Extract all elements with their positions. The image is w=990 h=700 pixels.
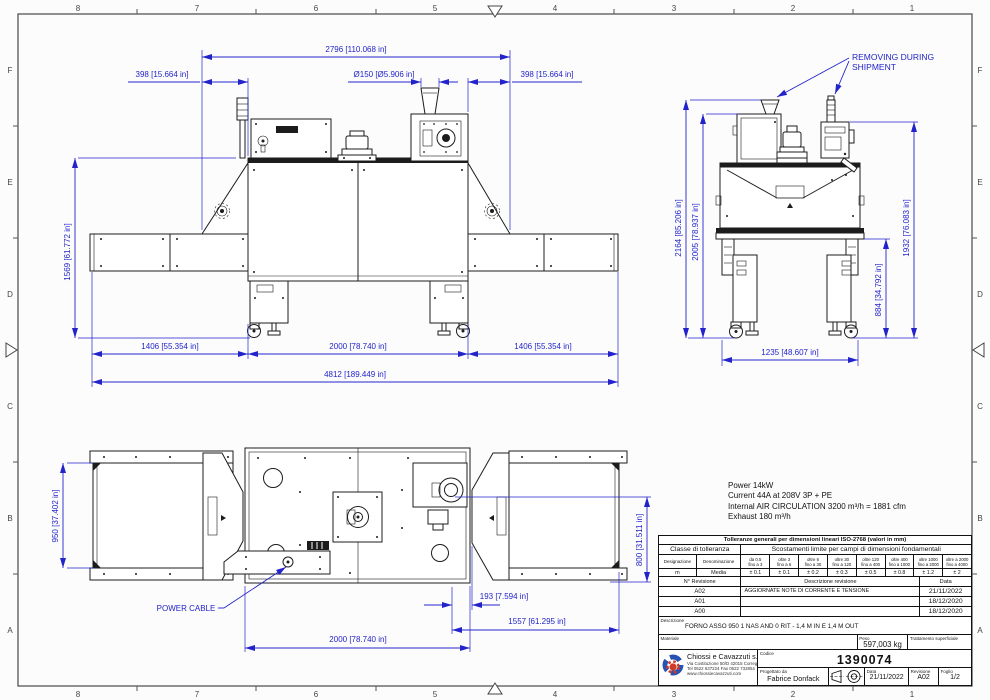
tolerance-class-header: Classe di tolleranza — [659, 545, 740, 554]
tolerance-range: oltre 120fino a 400 — [856, 555, 885, 568]
svg-text:7: 7 — [195, 690, 200, 699]
weight-label: Peso — [859, 636, 869, 641]
svg-text:398 [15.664 in]: 398 [15.664 in] — [136, 70, 189, 79]
svg-text:REMOVING DURING: REMOVING DURING — [852, 52, 934, 62]
svg-text:1406 [55.354 in]: 1406 [55.354 in] — [141, 342, 198, 351]
oven-body — [248, 158, 468, 281]
svg-text:C: C — [977, 402, 983, 411]
revision-label: Revisione — [911, 669, 931, 674]
svg-text:950 [37.402 in]: 950 [37.402 in] — [51, 490, 60, 543]
blower-box — [411, 114, 468, 161]
svg-text:1557 [61.295 in]: 1557 [61.295 in] — [508, 617, 565, 626]
svg-text:800 [31.511 in]: 800 [31.511 in] — [635, 514, 644, 566]
svg-text:3: 3 — [672, 690, 677, 699]
svg-text:C: C — [7, 402, 13, 411]
spec-power: Power 14kW — [728, 481, 906, 491]
power-specs: Power 14kW Current 44A at 208V 3P + PE I… — [728, 481, 906, 522]
svg-text:D: D — [977, 290, 983, 299]
dim-side-belt-height: 884 [34.792 in] — [874, 239, 886, 338]
material-label: Materiale — [661, 636, 680, 641]
dim-side-height-2: 2005 [78.937 in] — [691, 114, 703, 338]
title-block: Tolleranze generali per dimensioni linea… — [658, 535, 972, 686]
dim-front-top-width: 2796 [110.068 in] — [202, 45, 510, 57]
plan-view — [90, 448, 627, 583]
svg-text:1: 1 — [910, 690, 915, 699]
svg-text:2: 2 — [791, 690, 796, 699]
tolerance-value: ± 2 — [942, 569, 971, 576]
infeed-conveyor — [90, 234, 250, 271]
svg-text:884 [34.792 in]: 884 [34.792 in] — [874, 264, 883, 317]
plan-outfeed-conveyor — [509, 451, 627, 580]
svg-text:2: 2 — [791, 4, 796, 13]
tolerance-value: ± 0.2 — [798, 569, 827, 576]
dim-chimney-diameter: Ø150 [Ø5.906 in] — [348, 70, 458, 82]
company-logo-icon — [661, 653, 685, 681]
svg-text:SHIPMENT: SHIPMENT — [852, 62, 896, 72]
svg-text:8: 8 — [76, 4, 81, 13]
dim-plan-belt-width: 800 [31.511 in] — [635, 497, 647, 582]
side-body — [716, 163, 864, 228]
svg-text:B: B — [977, 514, 982, 523]
projection-symbol-icon — [828, 668, 864, 685]
dim-plan-outfeed: 1557 [61.295 in] — [452, 617, 619, 630]
description-label: Descrizione — [661, 618, 685, 623]
plan-outfeed-hood — [472, 453, 512, 580]
svg-text:1406 [55.354 in]: 1406 [55.354 in] — [514, 342, 571, 351]
svg-text:2000 [78.740 in]: 2000 [78.740 in] — [329, 342, 386, 351]
spec-circulation: Internal AIR CIRCULATION 3200 m³/h = 188… — [728, 502, 906, 512]
svg-text:2164 [85.206 in]: 2164 [85.206 in] — [674, 199, 683, 256]
sheet-label: Foglio — [941, 669, 953, 674]
plan-electrical-box — [224, 551, 330, 574]
svg-text:4: 4 — [553, 690, 558, 699]
tolerance-designation-label: Designazione — [659, 555, 696, 568]
exhaust-chimney — [421, 88, 439, 114]
svg-text:2796 [110.068 in]: 2796 [110.068 in] — [325, 45, 386, 54]
revision-header-description: Descrizione revisione — [740, 577, 919, 586]
svg-text:6: 6 — [314, 4, 319, 13]
spec-current: Current 44A at 208V 3P + PE — [728, 491, 906, 501]
svg-text:8: 8 — [76, 690, 81, 699]
conveyor-motor — [338, 131, 376, 161]
tolerance-range: oltre a 2000fino a 4000 — [942, 555, 971, 568]
svg-text:398 [15.664 in]: 398 [15.664 in] — [521, 70, 574, 79]
svg-text:A: A — [977, 626, 983, 635]
spec-exhaust: Exhaust 180 m³/h — [728, 512, 906, 522]
drawing-description: FORNO ASSO 950 1 NAS AND 0 RIT - 1,4 M I… — [659, 617, 971, 630]
tolerance-range: oltre 6fino a 30 — [798, 555, 827, 568]
dim-front-overall: 4812 [189.449 in] — [92, 370, 618, 382]
svg-text:4: 4 — [553, 4, 558, 13]
dim-front-offset-right: 398 [15.664 in] — [468, 70, 582, 82]
dim-front-outfeed: 1406 [55.354 in] — [468, 342, 618, 354]
revision-header-date: Data — [919, 577, 971, 586]
tolerance-value: ± 0.3 — [827, 569, 856, 576]
svg-text:193 [7.594 in]: 193 [7.594 in] — [480, 592, 528, 601]
svg-text:5: 5 — [433, 4, 438, 13]
designer-label: Progettato da — [760, 669, 787, 674]
dim-plan-conveyor-width: 950 [37.402 in] — [51, 463, 63, 568]
tolerance-value: ± 0.1 — [740, 569, 769, 576]
company-cell: Chiossi e Cavazzuti s.r.l. Via Costituzi… — [659, 650, 757, 685]
tolerance-denomination-label: Denominazione — [696, 555, 741, 568]
drawing-code: 1390074 — [758, 650, 971, 667]
front-view — [90, 88, 618, 338]
treatment-label: Trattamento superficiale — [910, 636, 958, 641]
svg-text:1: 1 — [910, 4, 915, 13]
tolerance-designation: m — [659, 569, 696, 576]
tolerance-value: ± 0.1 — [769, 569, 798, 576]
dim-side-width: 1235 [48.607 in] — [722, 348, 858, 360]
svg-text:2005 [78.937 in]: 2005 [78.937 in] — [691, 203, 700, 260]
dim-front-infeed: 1406 [55.354 in] — [92, 342, 248, 354]
tolerance-value: ± 0.5 — [856, 569, 885, 576]
plan-oven-body — [224, 448, 470, 583]
dim-plan-body: 2000 [78.740 in] — [245, 635, 470, 648]
company-name: Chiossi e Cavazzuti s.r.l. — [687, 652, 757, 661]
svg-text:2000 [78.740 in]: 2000 [78.740 in] — [329, 635, 386, 644]
signal-tower — [237, 98, 248, 158]
tolerance-range: oltre 3fino a 6 — [769, 555, 798, 568]
svg-text:1235 [48.607 in]: 1235 [48.607 in] — [761, 348, 818, 357]
svg-text:POWER CABLE: POWER CABLE — [157, 604, 216, 613]
front-legs — [248, 281, 470, 338]
dim-side-total-height: 2164 [85.206 in] — [674, 100, 686, 338]
svg-text:3: 3 — [672, 4, 677, 13]
infeed-hood — [202, 163, 248, 234]
dim-front-body: 2000 [78.740 in] — [248, 342, 468, 354]
outfeed-conveyor — [468, 234, 618, 271]
side-legs — [730, 255, 858, 338]
svg-text:7: 7 — [195, 4, 200, 13]
side-view — [716, 96, 864, 338]
tolerance-title: Tolleranze generali per dimensioni linea… — [659, 536, 971, 544]
dim-front-height: 1569 [61.772 in] — [63, 158, 75, 338]
svg-text:A: A — [7, 626, 13, 635]
control-panel — [251, 119, 331, 158]
side-chimney-box — [733, 100, 781, 163]
svg-text:D: D — [7, 290, 13, 299]
svg-text:Ø150 [Ø5.906 in]: Ø150 [Ø5.906 in] — [354, 70, 415, 79]
revision-row: A02 AGGIORNATE NOTE DI CORRENTE E TENSIO… — [659, 586, 971, 596]
svg-text:F: F — [978, 66, 983, 75]
dim-front-offset-left: 398 [15.664 in] — [128, 70, 248, 82]
dim-side-height-3: 1932 [76.083 in] — [902, 122, 914, 338]
svg-text:6: 6 — [314, 690, 319, 699]
svg-text:5: 5 — [433, 690, 438, 699]
svg-text:E: E — [7, 178, 12, 187]
tolerance-value: ± 1.2 — [913, 569, 942, 576]
svg-text:F: F — [8, 66, 13, 75]
company-web[interactable]: www.chiossiecavazzuti.com — [687, 671, 757, 676]
tolerance-range: oltre 400fino a 1000 — [885, 555, 914, 568]
tolerance-denomination: Media — [696, 569, 741, 576]
tolerance-range: da 0.5fino a 3 — [740, 555, 769, 568]
svg-text:1569 [61.772 in]: 1569 [61.772 in] — [63, 223, 72, 280]
svg-text:4812 [189.449 in]: 4812 [189.449 in] — [324, 370, 386, 379]
svg-text:E: E — [977, 178, 982, 187]
svg-text:1932 [76.083 in]: 1932 [76.083 in] — [902, 199, 911, 256]
tolerance-range: oltre 30fino a 120 — [827, 555, 856, 568]
tolerance-range: oltre 1000fino a 2000 — [913, 555, 942, 568]
outfeed-hood — [468, 163, 510, 234]
revision-header-number: N° Revisione — [659, 577, 740, 586]
code-label: Codice — [760, 651, 774, 656]
svg-text:B: B — [7, 514, 12, 523]
drawing-sheet: 8 7 6 5 4 3 2 1 8 7 6 5 4 3 2 1 F E D C … — [0, 0, 990, 700]
revision-row: A00 18/12/2020 — [659, 606, 971, 616]
date-label: Data — [867, 669, 877, 674]
tolerance-value: ± 0.8 — [885, 569, 914, 576]
dim-plan-offset: 193 [7.594 in] — [424, 592, 528, 605]
revision-row: A01 18/12/2020 — [659, 596, 971, 606]
side-control-panel — [821, 96, 857, 172]
shipment-note: REMOVING DURING SHIPMENT — [777, 52, 934, 97]
tolerance-limits-header: Scostamenti limite per campi di dimensio… — [740, 545, 971, 554]
